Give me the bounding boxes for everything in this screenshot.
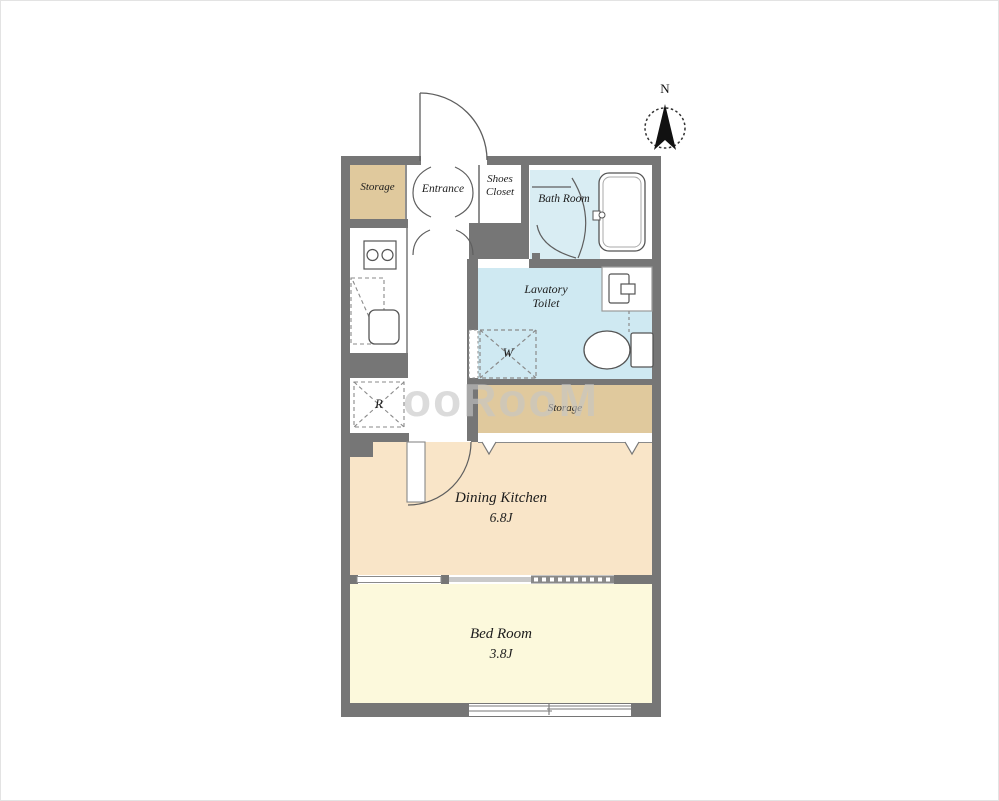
dining-kitchen-name: Dining Kitchen bbox=[455, 490, 547, 506]
dining-kitchen-area: 6.8J bbox=[490, 510, 513, 525]
closet-door-pivot-icons bbox=[482, 442, 639, 454]
vanity-icon bbox=[602, 267, 652, 311]
entrance-door-arc bbox=[420, 93, 487, 161]
washing-machine-label: W bbox=[496, 346, 520, 360]
floorplan-canvas: N Storage Entrance Shoes Closet Bath Roo… bbox=[0, 0, 999, 801]
lavatory-line1: Lavatory bbox=[524, 282, 567, 296]
toilet-icon bbox=[584, 331, 653, 369]
bath-room-label: Bath Room bbox=[525, 193, 603, 206]
bed-room-area: 3.8J bbox=[490, 646, 513, 661]
dining-kitchen-label: Dining Kitchen 6.8J bbox=[401, 489, 601, 528]
lavatory-door-opening bbox=[469, 330, 478, 378]
storage-entry-label: Storage bbox=[350, 181, 405, 194]
shoes-closet-label: Shoes Closet bbox=[478, 173, 522, 198]
stove-icon bbox=[364, 241, 396, 269]
entrance-label: Entrance bbox=[412, 183, 474, 196]
bath-door-stop bbox=[532, 253, 540, 259]
folding-door-icon bbox=[413, 167, 473, 255]
shoes-closet-line2: Closet bbox=[486, 186, 514, 198]
sliding-door-panels bbox=[357, 576, 614, 584]
shoes-closet-line1: Shoes bbox=[487, 173, 513, 185]
bathtub-icon bbox=[593, 173, 645, 251]
refrigerator-label: R bbox=[367, 397, 391, 411]
lavatory-toilet-label: Lavatory Toilet bbox=[496, 283, 596, 311]
compass-north-label: N bbox=[653, 82, 677, 97]
lavatory-line2: Toilet bbox=[533, 296, 560, 310]
sink-icon bbox=[351, 278, 399, 344]
bed-room-name: Bed Room bbox=[470, 626, 532, 642]
window-icon bbox=[469, 703, 631, 715]
compass-icon bbox=[645, 104, 685, 150]
bath-door-icon bbox=[532, 178, 586, 258]
bed-room-label: Bed Room 3.8J bbox=[401, 625, 601, 664]
watermark-text: ooRooM bbox=[403, 373, 599, 427]
